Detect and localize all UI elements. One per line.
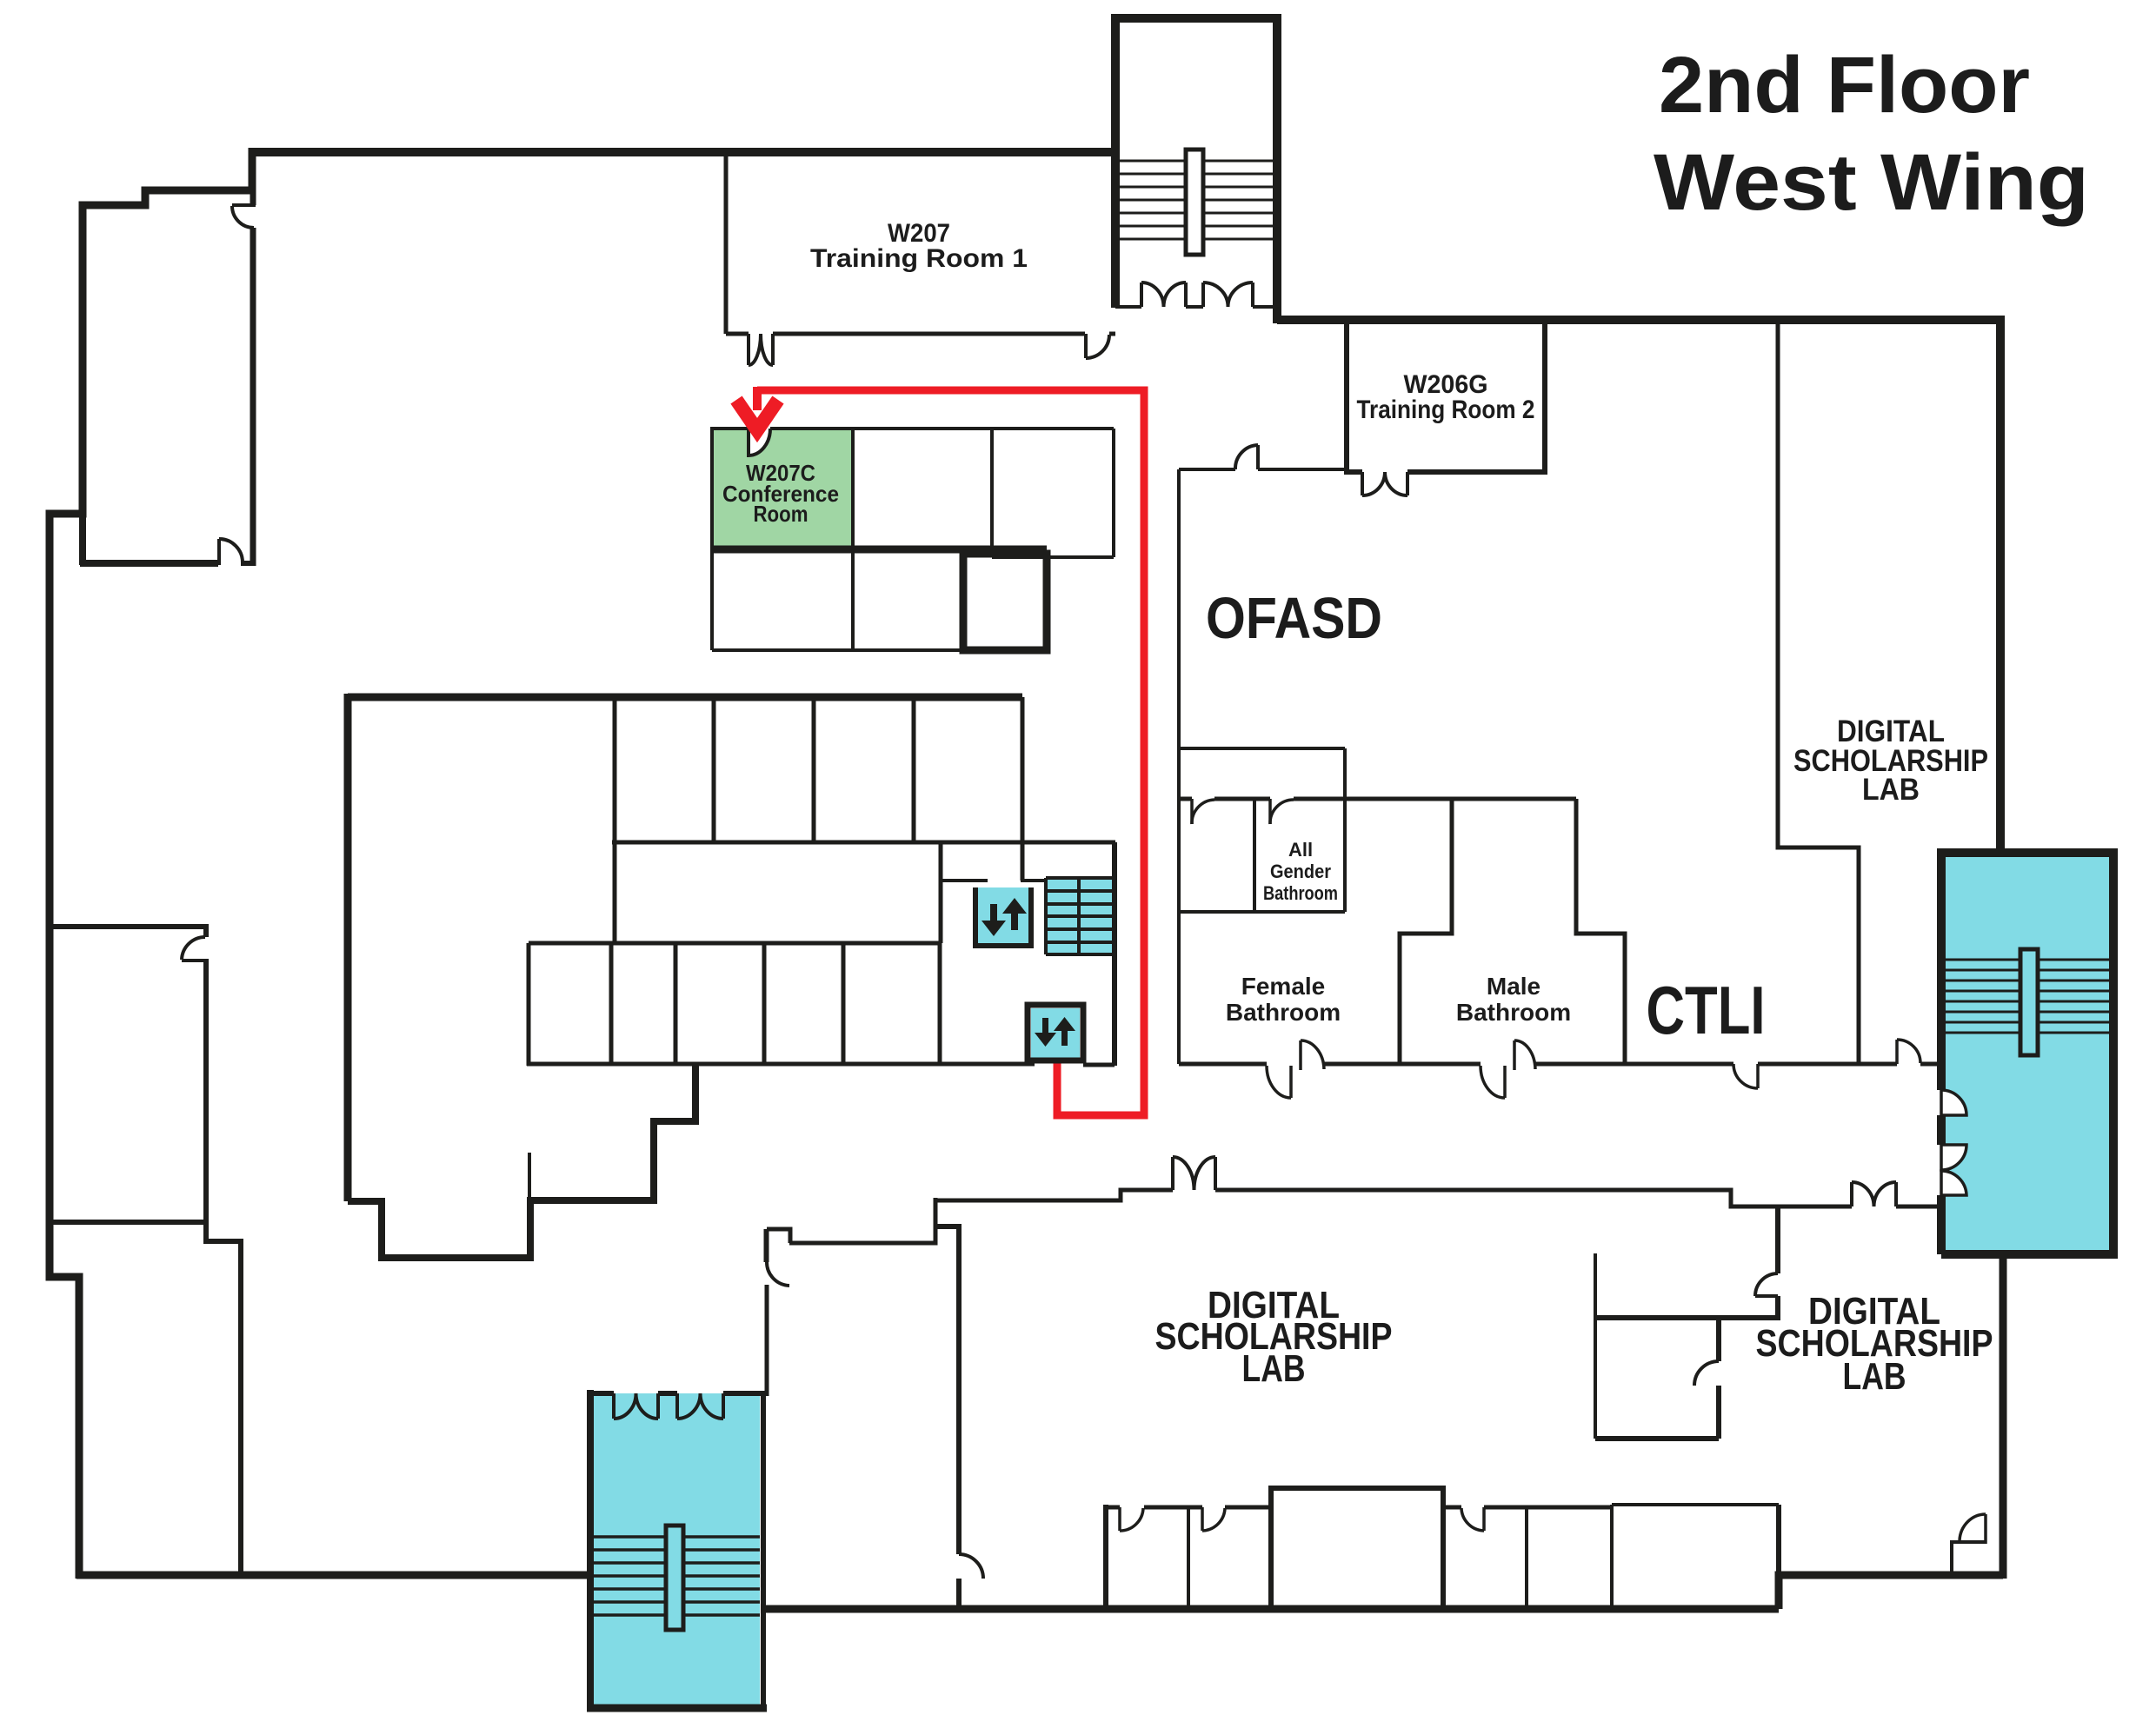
svg-text:LAB: LAB xyxy=(1843,1355,1906,1398)
svg-text:LAB: LAB xyxy=(1862,773,1920,807)
svg-text:All: All xyxy=(1288,839,1313,861)
svg-text:Training Room 2: Training Room 2 xyxy=(1357,396,1535,424)
svg-text:Bathroom: Bathroom xyxy=(1456,999,1571,1026)
svg-text:CTLI: CTLI xyxy=(1647,972,1766,1048)
svg-text:Female: Female xyxy=(1241,973,1326,1000)
svg-text:Bathroom: Bathroom xyxy=(1263,882,1338,904)
svg-text:LAB: LAB xyxy=(1242,1347,1306,1390)
svg-text:West Wing: West Wing xyxy=(1654,138,2089,227)
svg-text:Gender: Gender xyxy=(1270,861,1331,882)
svg-text:Training Room 1: Training Room 1 xyxy=(810,244,1028,273)
svg-text:Bathroom: Bathroom xyxy=(1226,999,1341,1026)
svg-text:Room: Room xyxy=(754,501,808,527)
svg-text:2nd Floor: 2nd Floor xyxy=(1659,41,2030,130)
svg-text:Male: Male xyxy=(1487,973,1540,1000)
svg-text:OFASD: OFASD xyxy=(1206,586,1382,651)
